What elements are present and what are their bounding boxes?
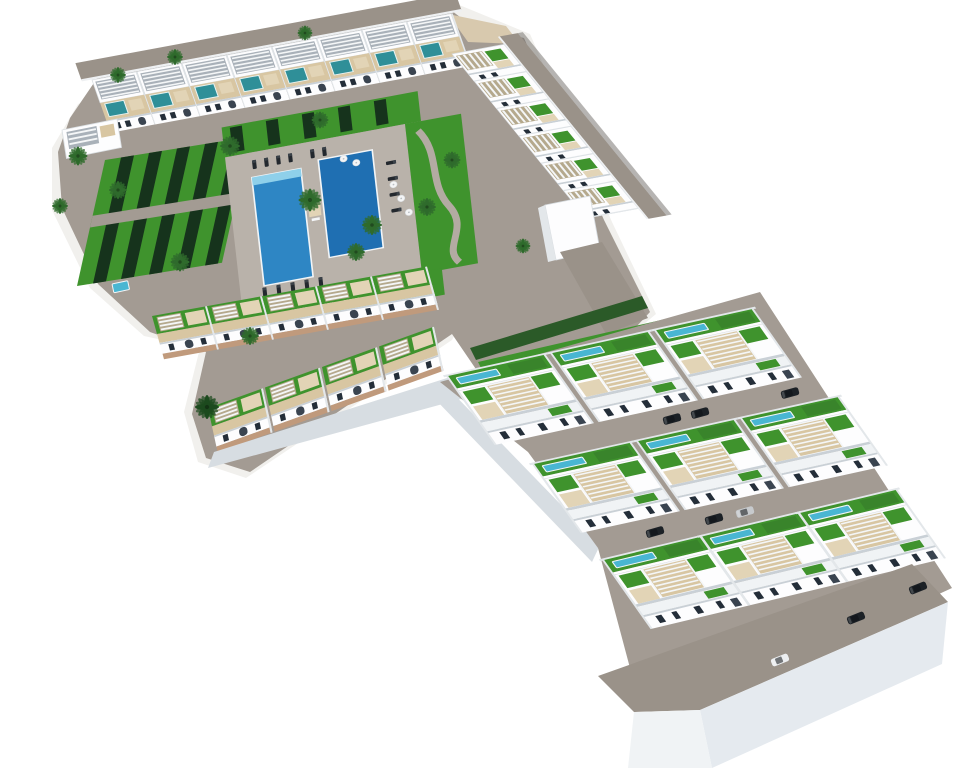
plinth-face-left <box>628 710 712 768</box>
main-pool-right <box>318 150 383 258</box>
aerial-render <box>0 0 974 768</box>
render-canvas <box>0 0 974 768</box>
